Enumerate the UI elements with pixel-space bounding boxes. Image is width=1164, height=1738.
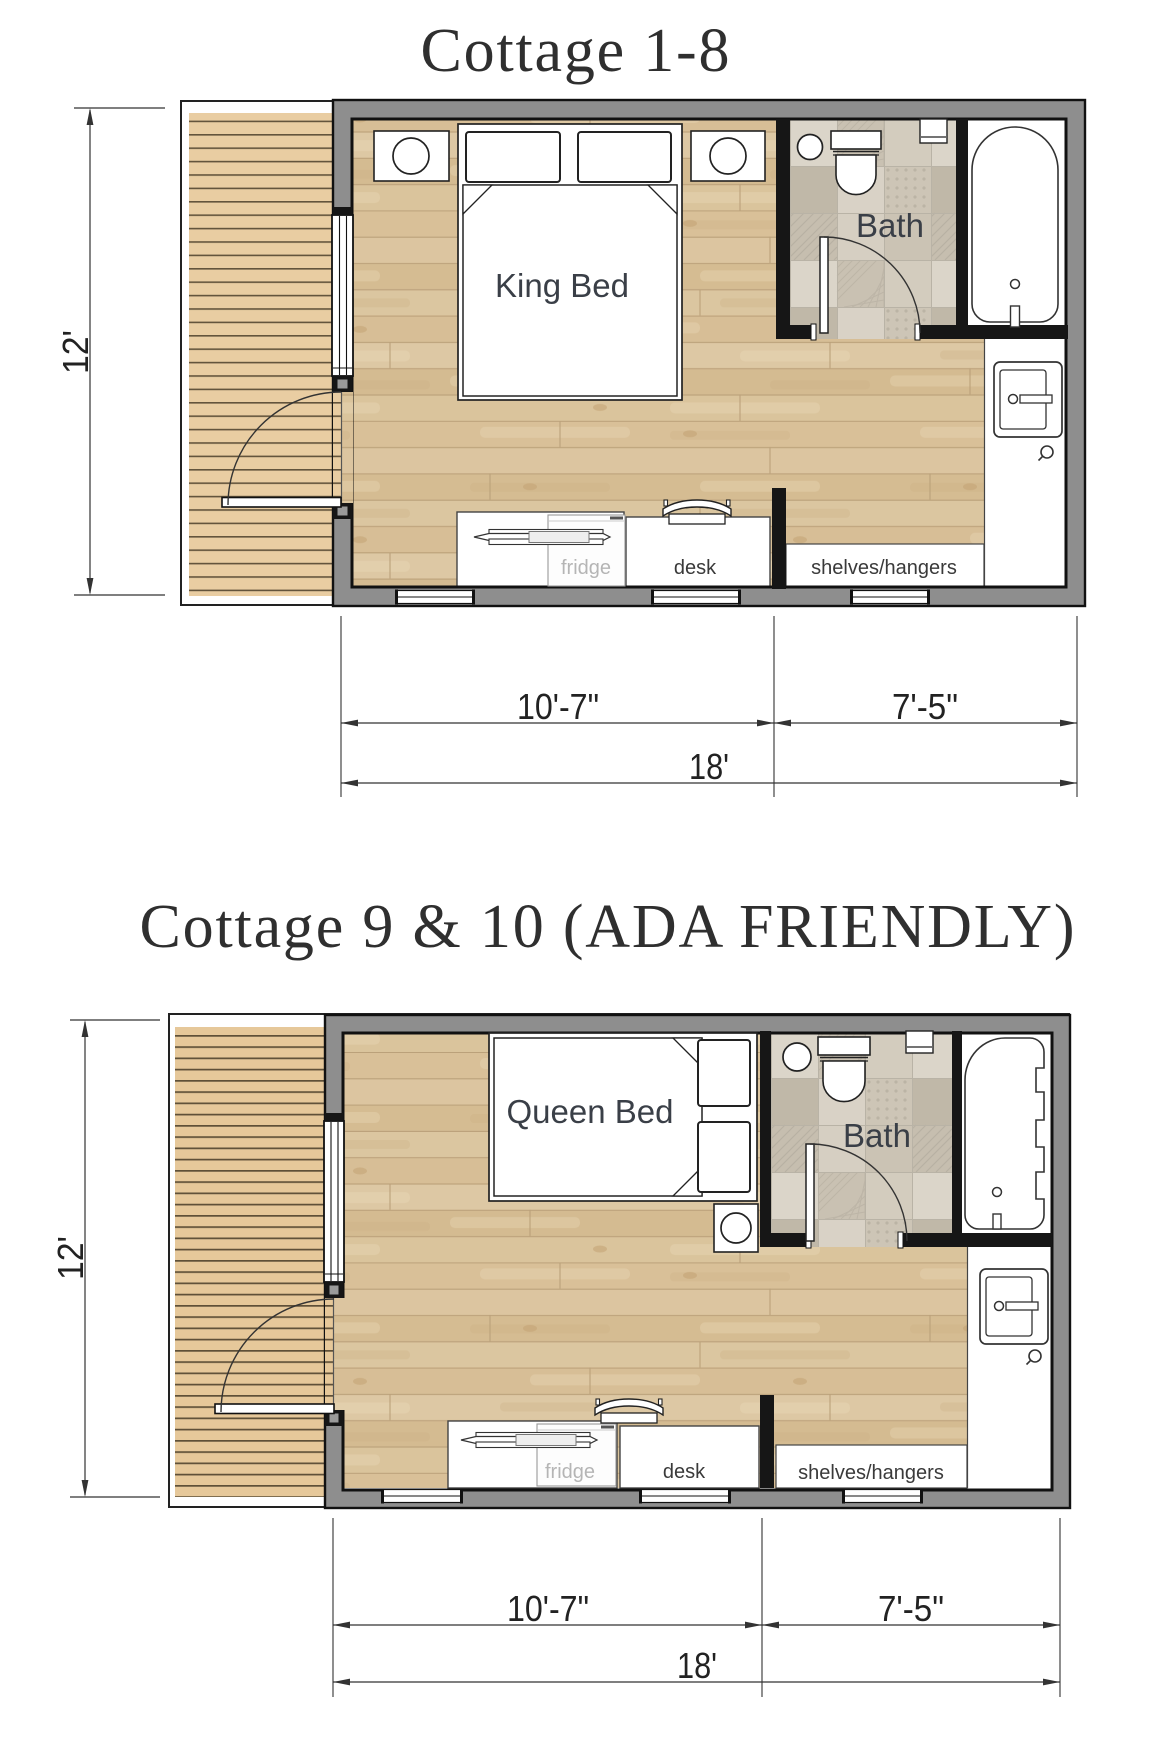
svg-text:18': 18' [677,1645,717,1686]
svg-text:Cottage 9 & 10 (ADA FRIENDLY): Cottage 9 & 10 (ADA FRIENDLY) [140,893,1075,961]
svg-text:7'-5": 7'-5" [878,1588,944,1629]
svg-text:Queen Bed: Queen Bed [507,1093,674,1130]
svg-text:7'-5": 7'-5" [892,686,958,727]
svg-text:shelves/hangers: shelves/hangers [811,557,957,579]
svg-text:10'-7": 10'-7" [507,1588,589,1629]
svg-text:King Bed: King Bed [495,267,629,304]
svg-text:desk: desk [663,1461,706,1483]
svg-text:10'-7": 10'-7" [517,686,599,727]
svg-text:shelves/hangers: shelves/hangers [798,1462,944,1484]
svg-text:18': 18' [689,746,729,787]
svg-text:12': 12' [55,330,96,374]
svg-text:desk: desk [674,557,717,579]
svg-text:Bath: Bath [856,207,924,244]
svg-text:fridge: fridge [545,1461,595,1483]
svg-text:Cottage 1-8: Cottage 1-8 [421,17,730,85]
svg-text:Bath: Bath [843,1117,911,1154]
svg-text:fridge: fridge [561,557,611,579]
svg-text:12': 12' [50,1236,91,1280]
